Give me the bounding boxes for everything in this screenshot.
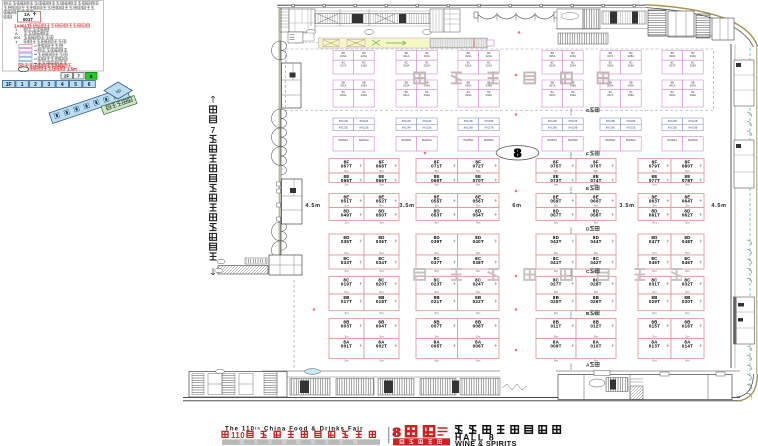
svg-text:031A: 031A — [403, 93, 409, 97]
svg-text:050T: 050T — [376, 213, 387, 218]
svg-text:5m: 5m — [344, 251, 349, 255]
svg-text:5m: 5m — [344, 290, 349, 294]
svg-text:6m: 6m — [685, 183, 690, 187]
svg-text:6m: 6m — [476, 269, 481, 273]
svg-text:6m: 6m — [476, 183, 481, 187]
svg-text:5m: 5m — [435, 169, 440, 173]
svg-text:6m: 6m — [594, 183, 599, 187]
svg-text:2: 2 — [34, 82, 37, 88]
svg-text:6m: 6m — [652, 183, 657, 187]
svg-text:5m: 5m — [685, 203, 690, 207]
svg-text:5m: 5m — [554, 203, 559, 207]
svg-text:5m: 5m — [685, 334, 690, 338]
svg-text:5m: 5m — [554, 290, 559, 294]
svg-text:016T: 016T — [682, 324, 693, 329]
svg-text:3.5m: 3.5m — [569, 227, 573, 234]
svg-text:030A: 030A — [690, 54, 696, 58]
svg-text:027A: 027A — [669, 64, 675, 68]
svg-text:057T: 057T — [550, 213, 561, 218]
svg-text:3.5m: 3.5m — [569, 311, 573, 318]
svg-text:039T: 039T — [431, 239, 442, 244]
svg-text:027T: 027T — [550, 282, 561, 287]
svg-text:011T: 011T — [550, 324, 561, 329]
svg-text:010T: 010T — [590, 344, 601, 349]
svg-text:038A: 038A — [628, 93, 634, 97]
svg-text:3m: 3m — [344, 269, 349, 273]
svg-text:3m: 3m — [344, 359, 349, 363]
svg-text:046T: 046T — [682, 260, 693, 265]
svg-text:002T: 002T — [376, 344, 387, 349]
svg-text:048T: 048T — [682, 239, 693, 244]
svg-text:5m: 5m — [685, 290, 690, 294]
svg-text:5m: 5m — [554, 251, 559, 255]
svg-text:6m: 6m — [652, 221, 657, 225]
svg-text:6: 6 — [88, 82, 91, 88]
svg-text:8H133B: 8H133B — [688, 126, 697, 129]
svg-text:037A: 037A — [607, 93, 613, 97]
svg-text:020A: 020A — [361, 54, 367, 58]
svg-text:F: F — [586, 151, 589, 157]
svg-text:4: 4 — [61, 82, 64, 88]
svg-text:5m: 5m — [379, 334, 384, 338]
svg-text:8H110B: 8H110B — [339, 120, 348, 123]
svg-text:062T: 062T — [682, 213, 693, 218]
svg-text:8G061A: 8G061A — [667, 138, 677, 142]
svg-text:3m: 3m — [379, 359, 384, 363]
svg-text:3.5m: 3.5m — [569, 363, 573, 370]
svg-text:020T: 020T — [376, 282, 387, 287]
svg-text:6m: 6m — [594, 359, 599, 363]
svg-text:058T: 058T — [590, 213, 601, 218]
svg-text:8G051A: 8G051A — [338, 138, 348, 142]
svg-text:031T: 031T — [649, 282, 660, 287]
svg-text:045T: 045T — [649, 260, 660, 265]
svg-text:5m: 5m — [594, 290, 599, 294]
svg-text:009T: 009T — [550, 344, 561, 349]
svg-text:003T: 003T — [341, 324, 352, 329]
svg-text:042T: 042T — [590, 260, 601, 265]
svg-text:022T: 022T — [473, 299, 484, 304]
svg-text:4.5m: 4.5m — [305, 203, 320, 209]
svg-text:8H130B: 8H130B — [606, 126, 615, 129]
svg-text:D: D — [586, 227, 590, 233]
svg-text:5: 5 — [74, 82, 77, 88]
svg-text:028T: 028T — [590, 282, 601, 287]
svg-text:6m: 6m — [476, 359, 481, 363]
svg-text:5m: 5m — [344, 334, 349, 338]
svg-text:6m: 6m — [594, 221, 599, 225]
svg-text:019A: 019A — [403, 64, 409, 68]
svg-text:6m: 6m — [512, 203, 521, 209]
svg-text:8H119B: 8H119B — [626, 120, 635, 123]
svg-text:A: A — [586, 363, 590, 369]
svg-text:5m: 5m — [652, 169, 657, 173]
svg-text:040A: 040A — [628, 83, 634, 87]
svg-text:047T: 047T — [649, 239, 660, 244]
svg-text:3m: 3m — [379, 183, 384, 187]
svg-text:038T: 038T — [473, 260, 484, 265]
svg-text:5m: 5m — [435, 334, 440, 338]
svg-text:049T: 049T — [341, 213, 352, 218]
svg-text:029A: 029A — [340, 93, 346, 97]
svg-text:7: 7 — [77, 74, 80, 79]
svg-text:5m: 5m — [379, 203, 384, 207]
svg-text:037A: 037A — [549, 83, 555, 87]
svg-text:6m: 6m — [652, 269, 657, 273]
svg-text:5m: 5m — [652, 251, 657, 255]
svg-text:007T: 007T — [431, 324, 442, 329]
svg-text:3m: 3m — [344, 311, 349, 315]
svg-text:8H114B: 8H114B — [464, 120, 473, 123]
svg-text:G: G — [586, 108, 590, 114]
svg-text:8G059A: 8G059A — [605, 138, 615, 142]
svg-text:032A: 032A — [361, 83, 367, 87]
svg-text:037T: 037T — [431, 260, 442, 265]
svg-text:036A: 036A — [570, 93, 576, 97]
svg-text:033T: 033T — [341, 260, 352, 265]
svg-text:8: 8 — [394, 424, 402, 440]
svg-text:025T: 025T — [550, 299, 561, 304]
svg-text:2F: 2F — [64, 74, 70, 79]
svg-text:6m: 6m — [435, 269, 440, 273]
svg-text:8H122B: 8H122B — [339, 126, 348, 129]
svg-text:032A: 032A — [424, 93, 430, 97]
svg-text:8H121B: 8H121B — [688, 120, 697, 123]
svg-text:026T: 026T — [590, 299, 601, 304]
svg-text:018A: 018A — [361, 64, 367, 68]
svg-text:8H123B: 8H123B — [359, 126, 368, 129]
svg-text:5m: 5m — [476, 290, 481, 294]
svg-text:8: 8 — [515, 146, 522, 160]
svg-text:8G056A: 8G056A — [484, 138, 494, 142]
svg-text:041A: 041A — [669, 83, 675, 87]
svg-text:3m: 3m — [344, 221, 349, 225]
svg-text:6m: 6m — [476, 221, 481, 225]
svg-text:018T: 018T — [376, 299, 387, 304]
svg-text:1.5m: 1.5m — [67, 66, 77, 71]
svg-text:6m: 6m — [554, 221, 559, 225]
svg-text:5m: 5m — [344, 169, 349, 173]
svg-text:043T: 043T — [550, 239, 561, 244]
svg-text:021A: 021A — [403, 54, 409, 58]
svg-text:025A: 025A — [549, 54, 555, 58]
svg-text:044T: 044T — [590, 239, 601, 244]
svg-text:5m: 5m — [435, 203, 440, 207]
svg-text:5m: 5m — [594, 251, 599, 255]
svg-text:014T: 014T — [682, 344, 693, 349]
svg-text:8H115B: 8H115B — [484, 120, 493, 123]
svg-text:1F: 1F — [6, 82, 12, 88]
svg-text:6m: 6m — [476, 311, 481, 315]
svg-text:5m: 5m — [344, 203, 349, 207]
svg-text:6m: 6m — [554, 269, 559, 273]
svg-text:053T: 053T — [431, 213, 442, 218]
svg-text:5m: 5m — [652, 334, 657, 338]
svg-text:5m: 5m — [652, 203, 657, 207]
svg-text:040A: 040A — [690, 93, 696, 97]
svg-text:3m: 3m — [379, 269, 384, 273]
svg-text:6m: 6m — [554, 359, 559, 363]
svg-text:017T: 017T — [341, 299, 352, 304]
svg-text:3.5m: 3.5m — [399, 203, 414, 209]
svg-text:035A: 035A — [549, 93, 555, 97]
svg-text:030T: 030T — [682, 299, 693, 304]
svg-text:3m: 3m — [379, 311, 384, 315]
svg-text:028A: 028A — [690, 64, 696, 68]
svg-text:8: 8 — [90, 74, 93, 80]
svg-text:5m: 5m — [554, 169, 559, 173]
svg-text:028A: 028A — [628, 54, 634, 58]
svg-text:035A: 035A — [465, 83, 471, 87]
svg-text:022A: 022A — [424, 54, 430, 58]
svg-text:3.5m: 3.5m — [569, 269, 573, 276]
svg-text:8G058A: 8G058A — [568, 138, 578, 142]
svg-text:8H118B: 8H118B — [606, 120, 615, 123]
svg-text:033A: 033A — [465, 93, 471, 97]
svg-text:5m: 5m — [652, 290, 657, 294]
svg-text:042A: 042A — [690, 83, 696, 87]
svg-text:6m: 6m — [554, 311, 559, 315]
svg-text:5m: 5m — [476, 334, 481, 338]
svg-text:8H124B: 8H124B — [402, 126, 411, 129]
svg-text:032T: 032T — [682, 282, 693, 287]
svg-text:001T: 001T — [341, 344, 352, 349]
svg-text:029T: 029T — [649, 299, 660, 304]
svg-text:8G054A: 8G054A — [422, 138, 432, 142]
svg-text:029A: 029A — [669, 54, 675, 58]
svg-text:6m: 6m — [685, 221, 690, 225]
svg-text:B: B — [586, 311, 590, 317]
svg-text:8G062A: 8G062A — [688, 138, 698, 142]
svg-text:026A: 026A — [628, 64, 634, 68]
svg-text:017A: 017A — [340, 64, 346, 68]
svg-text:5m: 5m — [476, 251, 481, 255]
svg-text:6m: 6m — [435, 221, 440, 225]
svg-text:3.5m: 3.5m — [569, 186, 573, 193]
svg-text:3.5m: 3.5m — [569, 108, 573, 115]
svg-text:008T: 008T — [473, 324, 484, 329]
svg-text:3m: 3m — [344, 183, 349, 187]
svg-text:6m: 6m — [435, 359, 440, 363]
svg-text:034T: 034T — [376, 260, 387, 265]
svg-text:015T: 015T — [649, 324, 660, 329]
svg-text:8G053A: 8G053A — [401, 138, 411, 142]
svg-text:022A: 022A — [486, 64, 492, 68]
svg-text:019T: 019T — [341, 282, 352, 287]
svg-text:5m: 5m — [594, 203, 599, 207]
svg-text:WINE & SPIRITS: WINE & SPIRITS — [455, 439, 517, 446]
svg-text:8H120B: 8H120B — [668, 120, 677, 123]
svg-text:006T: 006T — [473, 344, 484, 349]
svg-text:5m: 5m — [476, 203, 481, 207]
svg-text:013T: 013T — [649, 344, 660, 349]
svg-text:8H125B: 8H125B — [422, 126, 431, 129]
svg-text:040T: 040T — [473, 239, 484, 244]
svg-text:5m: 5m — [435, 251, 440, 255]
svg-text:021T: 021T — [431, 299, 442, 304]
svg-text:110: 110 — [231, 431, 245, 440]
svg-text:6m: 6m — [435, 311, 440, 315]
svg-text:012T: 012T — [590, 324, 601, 329]
svg-text:7: 7 — [211, 126, 216, 135]
svg-text:026A: 026A — [570, 54, 576, 58]
svg-text:5m: 5m — [379, 169, 384, 173]
svg-text:3.5m: 3.5m — [569, 151, 573, 158]
svg-text:4.5m: 4.5m — [711, 203, 726, 209]
svg-text:023T: 023T — [431, 282, 442, 287]
svg-text:6m: 6m — [685, 311, 690, 315]
svg-text:8G055A: 8G055A — [463, 138, 473, 142]
svg-text:061T: 061T — [649, 213, 660, 218]
svg-text:025A: 025A — [607, 64, 613, 68]
svg-text:8H132B: 8H132B — [668, 126, 677, 129]
svg-text:024A: 024A — [486, 54, 492, 58]
svg-text:8H128B: 8H128B — [548, 126, 557, 129]
svg-text:5m: 5m — [379, 290, 384, 294]
svg-text:3m: 3m — [379, 221, 384, 225]
svg-text:5m: 5m — [594, 334, 599, 338]
svg-text:C: C — [586, 269, 590, 275]
svg-text:6m: 6m — [554, 183, 559, 187]
svg-text:8H111B: 8H111B — [360, 120, 369, 123]
svg-text:5m: 5m — [476, 169, 481, 173]
svg-text:039A: 039A — [669, 93, 675, 97]
svg-text:001T: 001T — [23, 17, 34, 22]
svg-text:019A: 019A — [340, 54, 346, 58]
svg-text:035T: 035T — [341, 239, 352, 244]
svg-text:031A: 031A — [340, 83, 346, 87]
svg-text:8G060A: 8G060A — [626, 138, 636, 142]
svg-text:041T: 041T — [550, 260, 561, 265]
svg-text:6m: 6m — [435, 183, 440, 187]
svg-text:034A: 034A — [486, 93, 492, 97]
svg-text:5m: 5m — [685, 169, 690, 173]
svg-text:004T: 004T — [376, 324, 387, 329]
svg-text:6m: 6m — [652, 311, 657, 315]
svg-text:033A: 033A — [403, 83, 409, 87]
svg-text:023A: 023A — [465, 54, 471, 58]
svg-text:027A: 027A — [607, 54, 613, 58]
svg-text:023A: 023A — [549, 64, 555, 68]
svg-text:036T: 036T — [376, 239, 387, 244]
svg-text:024A: 024A — [570, 64, 576, 68]
svg-text:6m: 6m — [652, 359, 657, 363]
svg-text:030A: 030A — [361, 93, 367, 97]
svg-text:5m: 5m — [554, 334, 559, 338]
svg-text:5m: 5m — [379, 251, 384, 255]
svg-text:5m: 5m — [594, 169, 599, 173]
svg-text:6m: 6m — [685, 359, 690, 363]
svg-text:8H113B: 8H113B — [422, 120, 431, 123]
svg-text:8H117B: 8H117B — [568, 120, 577, 123]
svg-text:6m: 6m — [685, 269, 690, 273]
svg-text:8H112B: 8H112B — [402, 120, 411, 123]
svg-text:8G057A: 8G057A — [547, 138, 557, 142]
svg-text:8H116B: 8H116B — [548, 120, 557, 123]
svg-text:5m: 5m — [685, 251, 690, 255]
svg-text:3: 3 — [48, 82, 51, 88]
svg-text:005T: 005T — [431, 344, 442, 349]
svg-text:5m: 5m — [435, 290, 440, 294]
svg-text:8G052A: 8G052A — [359, 138, 369, 142]
svg-text:021A: 021A — [465, 64, 471, 68]
svg-text:020A: 020A — [424, 64, 430, 68]
svg-text:8H131B: 8H131B — [626, 126, 635, 129]
svg-text:054T: 054T — [473, 213, 484, 218]
svg-text:024T: 024T — [473, 282, 484, 287]
svg-text:1: 1 — [21, 82, 24, 88]
svg-text:8H126B: 8H126B — [464, 126, 473, 129]
svg-text:8H129B: 8H129B — [568, 126, 577, 129]
svg-text:3.5m: 3.5m — [619, 203, 634, 209]
svg-text:8H127B: 8H127B — [484, 126, 493, 129]
